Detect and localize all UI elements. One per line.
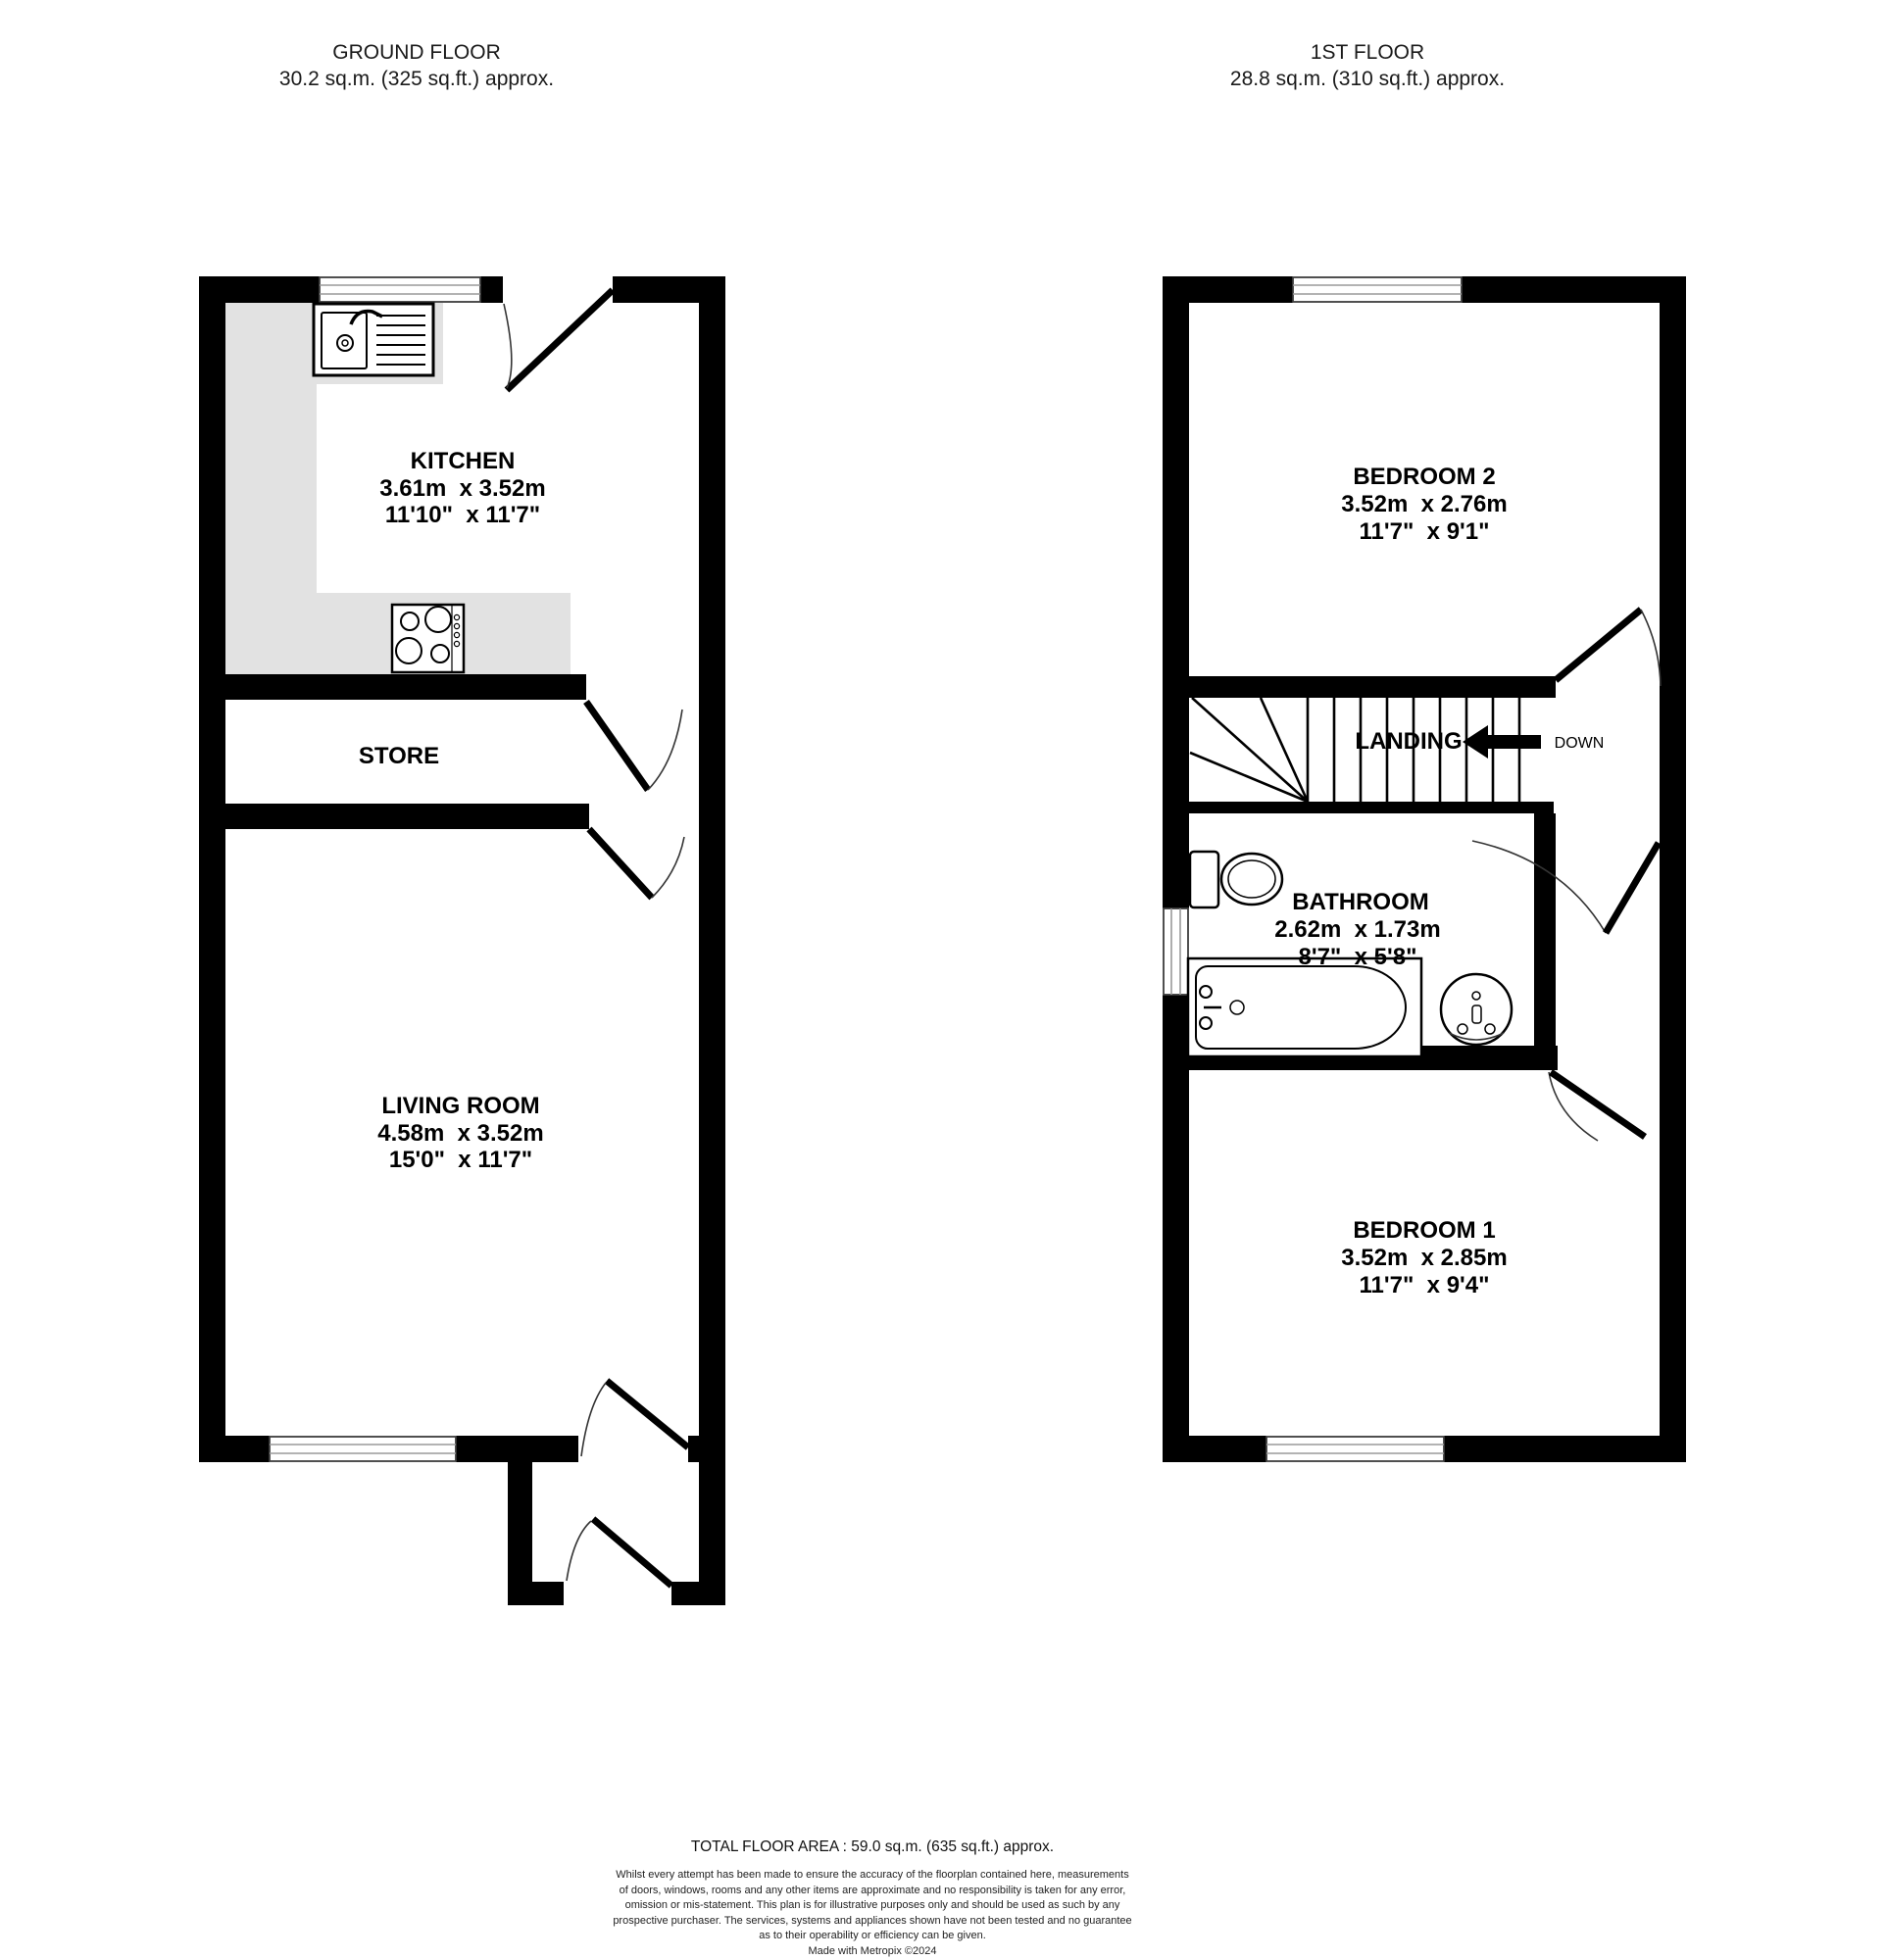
door-leaf — [507, 290, 613, 390]
kitchen-label: KITCHEN — [411, 448, 516, 474]
floorplan-drawing: KITCHEN 3.61m x 3.52m 11'10" x 11'7" STO… — [0, 0, 1886, 1960]
wall-top-mid — [480, 276, 503, 303]
disclaimer-line: of doors, windows, rooms and any other i… — [0, 1884, 1745, 1899]
floorplan-page: GROUND FLOOR 30.2 sq.m. (325 sq.ft.) app… — [0, 0, 1886, 1960]
wall-left — [199, 276, 225, 1462]
disclaimer-line: as to their operability or efficiency ca… — [0, 1929, 1745, 1944]
wall-bottom-left — [199, 1436, 270, 1462]
living-room-label: LIVING ROOM — [381, 1093, 539, 1119]
bathroom-dims-imperial: 8'7" x 5'8" — [1299, 944, 1417, 970]
door-arc — [1549, 1072, 1598, 1141]
window-frame — [1293, 277, 1462, 302]
stairs-bottom-rail — [1189, 802, 1554, 813]
bedroom2-door — [1556, 610, 1661, 686]
window-frame — [1164, 908, 1188, 995]
wall-top-right — [613, 276, 725, 303]
washbasin-icon — [1441, 974, 1512, 1045]
wall-bottom-mid — [456, 1436, 578, 1462]
door-leaf — [589, 829, 652, 898]
bathtub-drain — [1230, 1001, 1244, 1014]
door-leaf — [1556, 610, 1641, 680]
door-arc — [567, 1521, 591, 1581]
wall-bedroom2-landing — [1189, 676, 1556, 698]
bathroom-window — [1164, 908, 1188, 995]
wall-top-right — [1462, 276, 1686, 303]
porch-wall-bottom-right — [671, 1582, 725, 1605]
door-leaf — [1551, 1072, 1645, 1137]
living-room-dims-imperial: 15'0" x 11'7" — [389, 1147, 532, 1173]
wall-bathroom-divider — [1534, 813, 1556, 1050]
hob-burner — [431, 645, 449, 662]
bathroom-label: BATHROOM — [1292, 889, 1429, 915]
basin-tap — [1485, 1024, 1495, 1034]
bedroom1-dims-imperial: 11'7" x 9'4" — [1360, 1272, 1490, 1298]
wall-right — [1660, 276, 1686, 1462]
bedroom2-dims-imperial: 11'7" x 9'1" — [1360, 518, 1490, 545]
kitchen-door — [504, 290, 613, 390]
window-frame — [320, 277, 480, 302]
bedroom2-dims-metric: 3.52m x 2.76m — [1341, 491, 1507, 517]
door-leaf — [586, 702, 648, 790]
wall-store-living — [199, 804, 589, 829]
ground-floor-plan: KITCHEN 3.61m x 3.52m 11'10" x 11'7" STO… — [199, 276, 725, 1605]
door-arc — [652, 837, 684, 898]
bedroom1-dims-metric: 3.52m x 2.85m — [1341, 1245, 1507, 1271]
counter-left-strip — [225, 303, 317, 593]
wall-top-left — [1163, 276, 1293, 303]
porch-wall-bottom-left — [508, 1582, 564, 1605]
kitchen-dims-imperial: 11'10" x 11'7" — [385, 502, 540, 528]
bedroom2-label: BEDROOM 2 — [1353, 464, 1495, 490]
door-leaf — [607, 1381, 688, 1447]
front-door — [567, 1519, 671, 1586]
bathroom-dims-metric: 2.62m x 1.73m — [1274, 916, 1440, 943]
landing-label: LANDING — [1355, 728, 1462, 755]
living-room-dims-metric: 4.58m x 3.52m — [377, 1120, 543, 1147]
window-frame — [1266, 1437, 1444, 1461]
bathtub-tap — [1200, 986, 1212, 998]
basin-stem — [1472, 1005, 1481, 1023]
wall-top-left — [199, 276, 320, 303]
toilet-icon — [1190, 852, 1282, 907]
door-leaf — [593, 1519, 671, 1586]
first-floor-plan: BEDROOM 2 3.52m x 2.76m 11'7" x 9'1" LAN… — [1163, 276, 1686, 1462]
disclaimer-line: omission or mis-statement. This plan is … — [0, 1898, 1745, 1914]
down-arrow-icon — [1463, 725, 1541, 759]
store-label: STORE — [359, 743, 439, 769]
hob-burner — [401, 612, 419, 630]
door-arc — [648, 710, 682, 790]
wall-kitchen-store — [199, 674, 586, 700]
bedroom1-label: BEDROOM 1 — [1353, 1217, 1495, 1244]
bathtub-inner — [1196, 966, 1406, 1049]
kitchen-dims-metric: 3.61m x 3.52m — [379, 475, 545, 502]
door-leaf — [1606, 843, 1659, 933]
credit-line: Made with Metropix ©2024 — [0, 1944, 1745, 1960]
stair-winders — [1190, 698, 1308, 802]
wall-left-upper — [1163, 276, 1189, 908]
disclaimer: Whilst every attempt has been made to en… — [0, 1868, 1745, 1959]
wall-bottom-left — [1163, 1436, 1266, 1462]
wall-bottom-right — [1444, 1436, 1686, 1462]
basin-spout — [1472, 992, 1480, 1000]
basin-tap — [1458, 1024, 1467, 1034]
wall-bottom-right-stub — [688, 1436, 725, 1462]
bedroom1-door — [1472, 841, 1659, 933]
total-floor-area: TOTAL FLOOR AREA : 59.0 sq.m. (635 sq.ft… — [0, 1838, 1745, 1856]
door-arc — [581, 1383, 606, 1456]
window-frame — [270, 1437, 456, 1461]
wall-right — [699, 276, 725, 1462]
hob-burner — [396, 638, 422, 663]
kitchen-window — [320, 277, 480, 302]
hob-burner — [425, 607, 451, 632]
store-top-door — [586, 702, 682, 790]
door-arc — [1641, 610, 1661, 686]
store-bottom-door — [589, 829, 684, 898]
sink-drain-center — [342, 340, 348, 346]
down-label: DOWN — [1555, 735, 1605, 752]
sink-unit-icon — [314, 304, 433, 375]
bathroom-door — [1549, 1072, 1645, 1141]
door-arc — [504, 304, 512, 388]
bathtub-icon — [1188, 958, 1421, 1056]
disclaimer-line: prospective purchaser. The services, sys… — [0, 1914, 1745, 1930]
living-room-window — [270, 1437, 456, 1461]
toilet-bowl-inner — [1228, 860, 1275, 898]
bathtub-tap — [1200, 1017, 1212, 1029]
toilet-cistern — [1190, 852, 1218, 907]
bedroom1-window — [1266, 1437, 1444, 1461]
bedroom2-window — [1293, 277, 1462, 302]
hob-icon — [392, 605, 464, 672]
disclaimer-line: Whilst every attempt has been made to en… — [0, 1868, 1745, 1884]
living-room-door — [581, 1381, 688, 1456]
